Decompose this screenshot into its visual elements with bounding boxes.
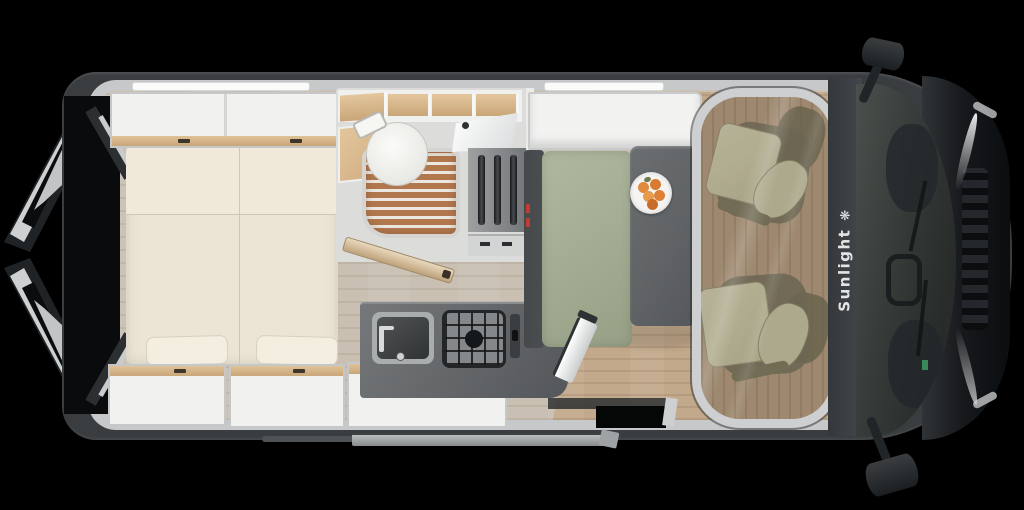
a-pillar-highlight xyxy=(952,326,980,406)
campervan-floorplan: Sunlight❋ xyxy=(0,0,1024,510)
sliding-door-endcap xyxy=(599,429,620,448)
wardrobe-rails xyxy=(468,148,532,232)
drawer-handle xyxy=(480,242,490,246)
mattress-seam xyxy=(126,214,338,215)
bathroom xyxy=(336,88,534,262)
gas-hob xyxy=(442,310,506,368)
side-mirror-top xyxy=(860,36,907,72)
double-bed-mattress xyxy=(126,146,338,364)
cab-seat-through-glass xyxy=(886,124,938,212)
sliding-door-rail xyxy=(262,436,358,442)
wardrobe-rail xyxy=(478,155,485,225)
cabinet-wood-edge xyxy=(110,366,224,376)
shelf-cell xyxy=(388,94,431,116)
sun-logo-icon: ❋ xyxy=(839,208,854,220)
brand-label: Sunlight❋ xyxy=(836,208,854,311)
side-mirror-bottom xyxy=(862,451,921,498)
burner xyxy=(465,330,483,348)
roof-light-strip-dinette xyxy=(544,82,664,91)
faucet xyxy=(379,326,384,352)
drawer-handle xyxy=(502,242,512,246)
cab-roof-window xyxy=(692,88,840,428)
sliding-door-panel xyxy=(352,433,614,446)
wardrobe-drawer xyxy=(468,234,532,256)
hob-control-panel xyxy=(510,314,520,358)
windshield-sticker xyxy=(922,360,928,370)
basin-drain xyxy=(462,122,469,129)
entry-doorway-opening xyxy=(596,406,666,428)
brand-logo: Sunlight❋ xyxy=(826,185,864,335)
shelf-cell xyxy=(432,94,475,116)
overhead-cabinet-rear-bottom-left xyxy=(108,364,226,426)
wardrobe-rail xyxy=(494,155,501,225)
fruit-plate xyxy=(630,172,672,214)
dinette-overhead-shelf xyxy=(528,92,702,150)
cab-seat-through-glass xyxy=(888,320,944,408)
cabinet-wood-edge xyxy=(112,136,338,146)
overhead-cabinet-rear-bottom-mid xyxy=(229,364,345,428)
shelf-cell xyxy=(476,94,519,116)
seatbelt-mark xyxy=(526,204,530,213)
wardrobe-rail xyxy=(510,155,517,225)
cabinet-wood-edge xyxy=(231,366,343,376)
faucet-knob xyxy=(396,352,405,361)
mattress-seam xyxy=(239,146,240,364)
hob-knob xyxy=(512,330,518,341)
roof-light-strip-rear xyxy=(132,82,310,91)
fruit xyxy=(647,199,658,210)
overhead-cabinet-rear-top xyxy=(110,92,340,148)
cabinet-handle xyxy=(174,369,186,373)
fruit xyxy=(650,179,661,190)
cabinet-handle xyxy=(178,139,190,143)
seatbelt-mark xyxy=(526,218,530,227)
cabinet-handle xyxy=(290,139,302,143)
bed-pillow-right xyxy=(256,335,339,366)
bed-pillow-left xyxy=(146,335,229,366)
grille-vents xyxy=(962,168,988,330)
bench-backrest xyxy=(524,150,544,348)
steering-wheel xyxy=(886,254,922,306)
kitchen-sink xyxy=(372,312,434,364)
brand-name: Sunlight xyxy=(836,229,854,312)
cabinet-handle xyxy=(293,369,305,373)
